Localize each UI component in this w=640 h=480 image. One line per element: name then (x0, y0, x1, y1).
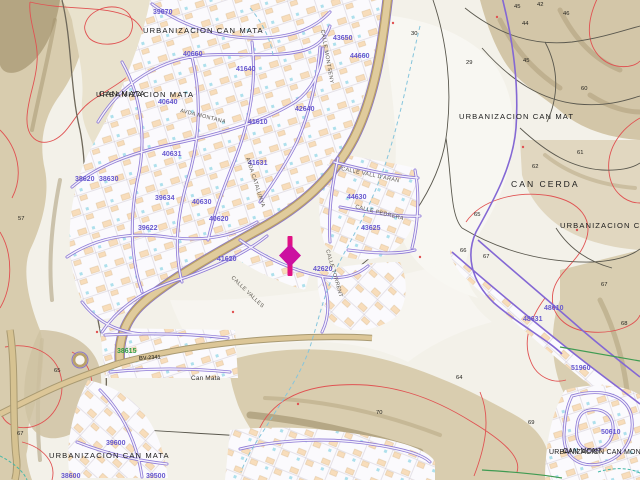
parcel-number: 44 (522, 21, 529, 27)
block-number: 39670 (153, 9, 173, 16)
parcel-number: 60 (581, 86, 587, 92)
block-number: 42640 (295, 106, 315, 113)
parcel-number: 67 (483, 254, 489, 260)
map-viewport[interactable]: URBANIZACION CAN MATA URBANIZACION MATA … (0, 0, 640, 480)
place-label: CAN CERDA (511, 179, 580, 189)
block-number: 39622 (138, 225, 158, 232)
block-number: 40630 (192, 199, 212, 206)
parcel-number: 67 (601, 282, 607, 288)
block-number: 41610 (248, 119, 268, 126)
place-label: CAN MONT (563, 448, 602, 455)
block-number: 43625 (361, 225, 381, 232)
parcel-number: 62 (532, 164, 538, 170)
block-number: 40620 (209, 216, 229, 223)
place-label: Can Mata (191, 375, 221, 382)
block-number: 43650 (333, 35, 353, 42)
parcel-number: 64 (456, 375, 463, 381)
block-number: 41620 (217, 256, 237, 263)
parcel-number: 65 (474, 212, 480, 218)
block-number: 48610 (544, 305, 564, 312)
place-label: CAN MATA (99, 89, 146, 98)
block-number: 38600 (61, 473, 81, 480)
block-number: 44630 (347, 194, 367, 201)
parcel-number: 69 (528, 420, 534, 426)
parcel-number: 57 (18, 216, 24, 222)
parcel-number: 46 (563, 11, 569, 17)
place-label: URBANIZACION CAN C (560, 221, 640, 230)
parcel-number: 61 (577, 150, 583, 156)
place-label: URBANIZACION CAN MAT (459, 112, 574, 121)
block-number: 51960 (571, 365, 591, 372)
parcel-number: 45 (514, 4, 520, 10)
block-number: 40631 (162, 151, 182, 158)
green-block-number: 38615 (117, 348, 137, 355)
parcel-number: 30 (411, 31, 417, 37)
place-label: URBANIZACION CAN MATA (143, 26, 264, 35)
map-screenshot: URBANIZACION CAN MATA URBANIZACION MATA … (0, 0, 640, 480)
block-number: 50610 (601, 429, 621, 436)
parcel-number: 70 (376, 410, 382, 416)
block-number: 41640 (236, 66, 256, 73)
block-number: 39634 (155, 195, 175, 202)
parcel-number: 66 (460, 248, 466, 254)
block-number: 40640 (158, 99, 178, 106)
parcel-number: 65 (54, 368, 60, 374)
parcel-number: 67 (17, 431, 23, 437)
parcel-number: 45 (523, 58, 529, 64)
parcel-number: 29 (466, 60, 472, 66)
block-number: 44660 (350, 53, 370, 60)
place-label: URBANIZACIÓN CAN MATA (49, 451, 170, 460)
block-number: 38630 (99, 176, 119, 183)
block-number: 39500 (146, 473, 166, 480)
block-number: 38620 (75, 176, 95, 183)
parcel-number: 68 (621, 321, 627, 327)
parcel-number: 42 (537, 2, 543, 8)
block-number: 39600 (106, 440, 126, 447)
block-number: 40660 (183, 51, 203, 58)
block-number: 48631 (523, 316, 543, 323)
